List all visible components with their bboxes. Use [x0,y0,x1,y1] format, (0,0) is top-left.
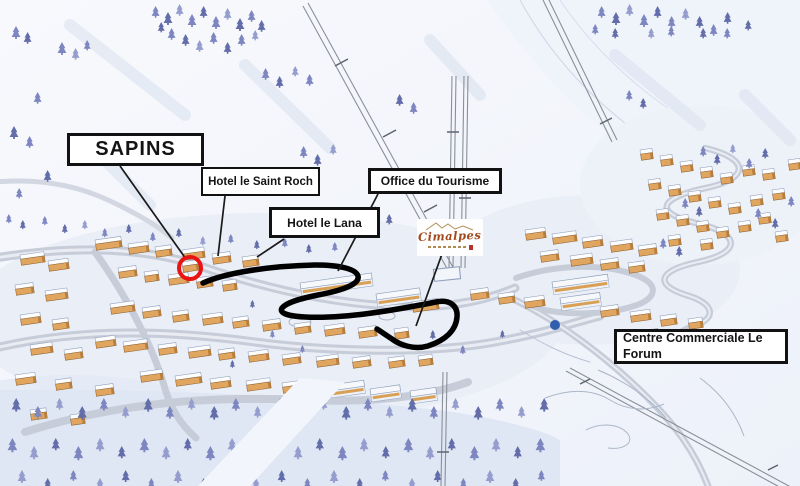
label-forum-line2: Forum [623,347,662,363]
resort-map: SAPINS Hotel le Saint Roch Hotel le Lana… [0,0,800,486]
label-sapins: SAPINS [67,133,204,166]
cimalpes-wordmark: Cimalpes [418,230,482,244]
label-hotel-saint-roch: Hotel le Saint Roch [201,167,320,196]
label-hotel-lana: Hotel le Lana [269,207,380,238]
resort-map-illustration [0,0,800,486]
cimalpes-logo: Cimalpes [417,219,483,256]
cimalpes-tagline-row [428,245,473,250]
label-forum-line1: Centre Commerciale Le [623,331,763,347]
poi-dot-marker [550,320,560,330]
label-centre-commerciale-le-forum: Centre Commerciale Le Forum [614,329,788,364]
cimalpes-tagline-rule [428,246,466,248]
label-office-du-tourisme: Office du Tourisme [368,168,502,194]
cimalpes-red-square-icon [469,245,473,250]
